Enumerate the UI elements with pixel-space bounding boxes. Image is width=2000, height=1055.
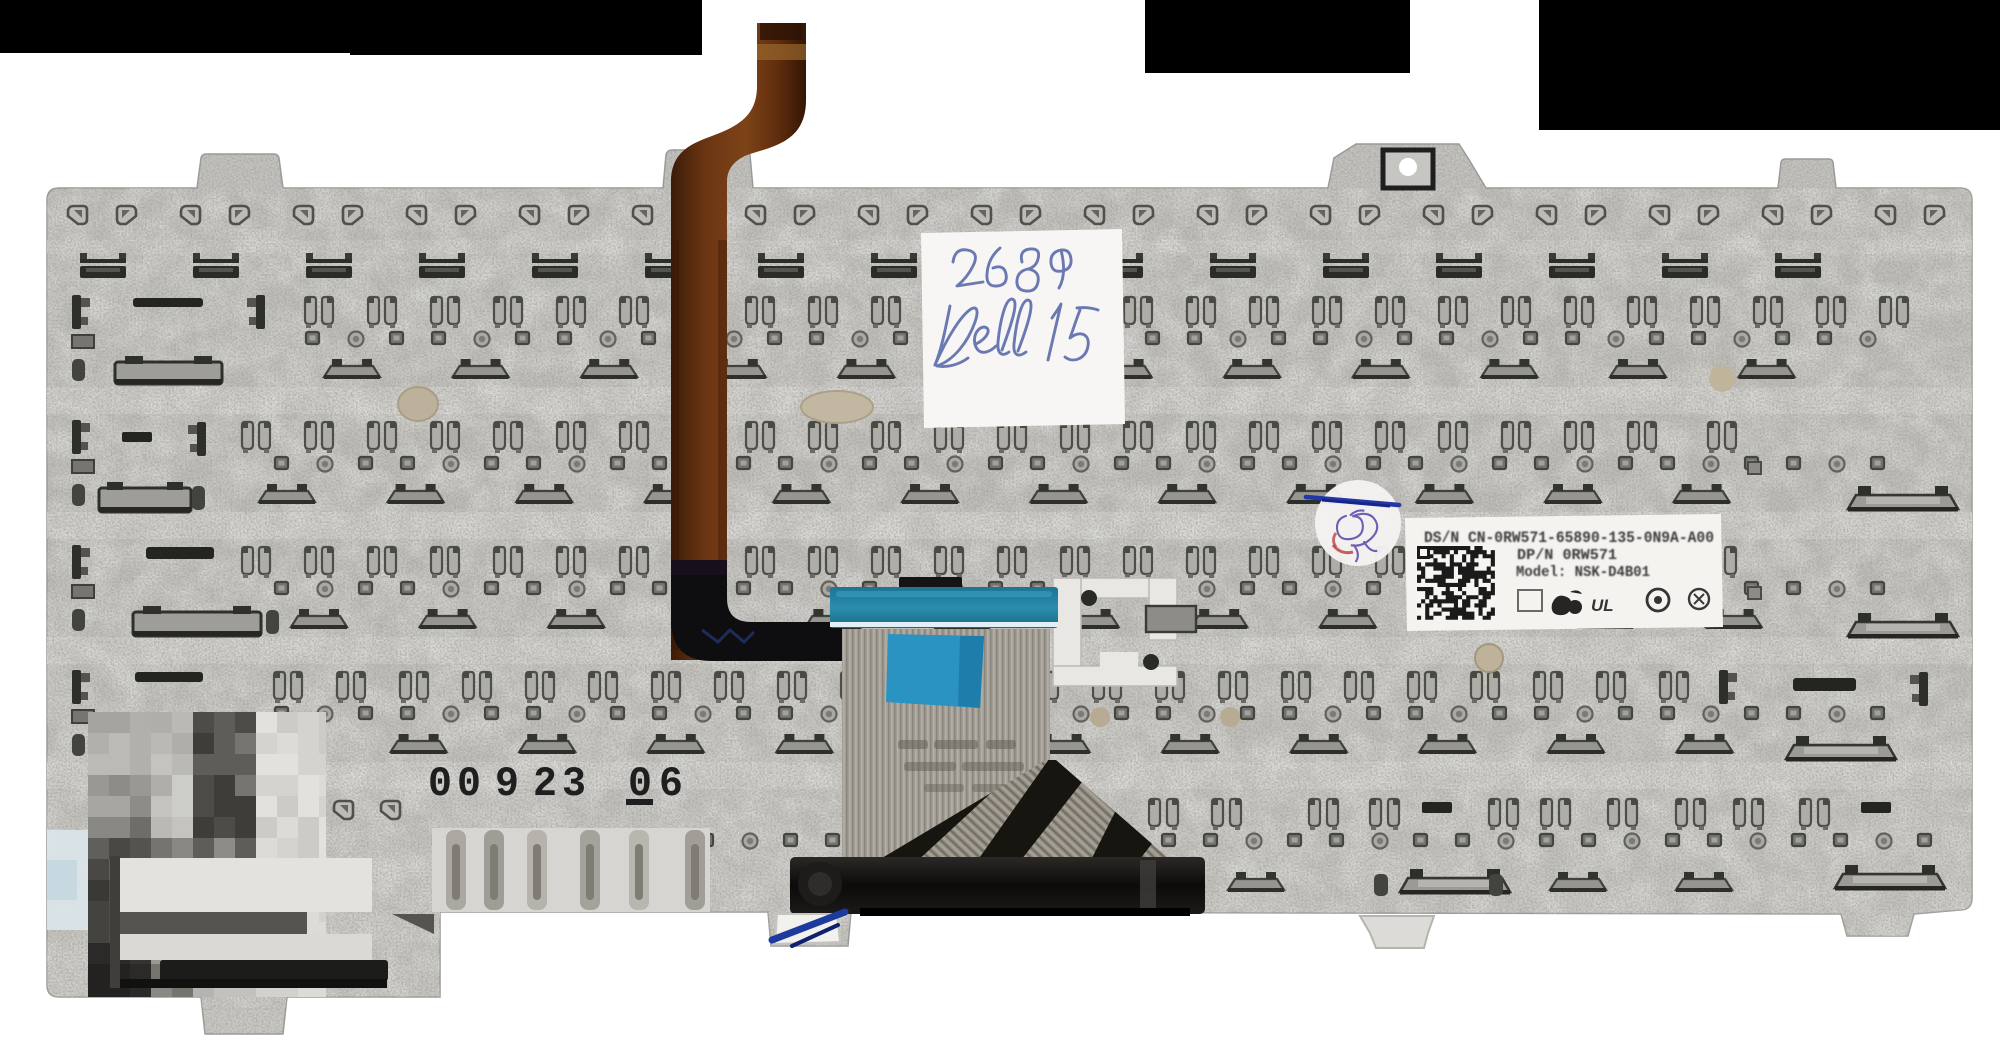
svg-text:3: 3 (562, 760, 586, 808)
svg-text:0: 0 (457, 760, 481, 808)
svg-text:6: 6 (659, 760, 683, 808)
svg-text:0: 0 (428, 760, 452, 808)
svg-text:2: 2 (533, 760, 557, 808)
svg-text:UL: UL (1591, 596, 1614, 615)
svg-text:DS/N CN-0RW571-65890-135-0N9A-: DS/N CN-0RW571-65890-135-0N9A-A00 (1424, 529, 1714, 547)
svg-text:Model: NSK-D4B01: Model: NSK-D4B01 (1516, 565, 1650, 581)
svg-text:DP/N 0RW571: DP/N 0RW571 (1517, 548, 1617, 564)
svg-text:9: 9 (495, 760, 519, 808)
